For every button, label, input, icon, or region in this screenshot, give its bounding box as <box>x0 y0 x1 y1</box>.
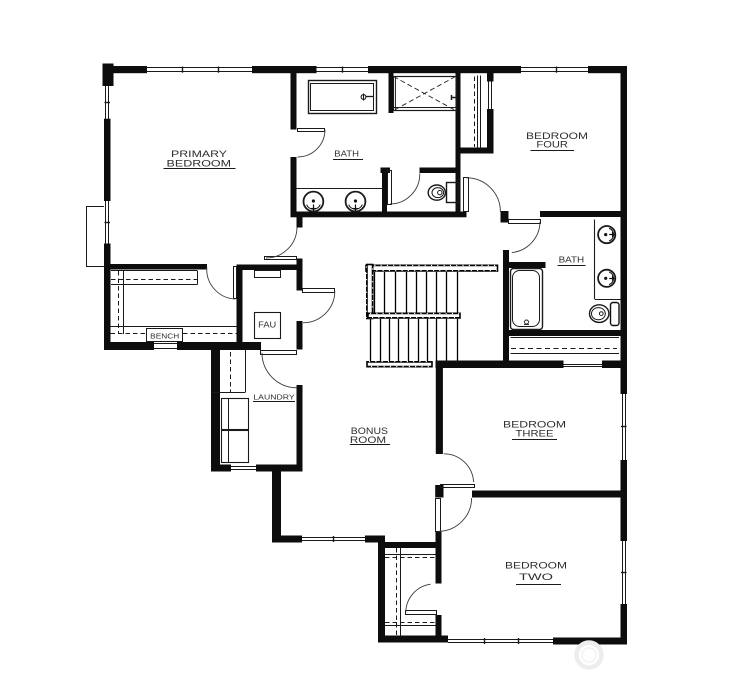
svg-text:BEDROOM: BEDROOM <box>505 561 567 571</box>
svg-text:TWO: TWO <box>519 572 553 582</box>
svg-text:THREE: THREE <box>516 429 554 439</box>
svg-text:LAUNDRY: LAUNDRY <box>253 392 294 401</box>
svg-text:BATH: BATH <box>559 256 585 265</box>
svg-text:BEDROOM: BEDROOM <box>167 158 232 168</box>
svg-text:ROOM: ROOM <box>350 435 386 445</box>
svg-text:BENCH: BENCH <box>150 331 179 340</box>
svg-text:FOUR: FOUR <box>536 140 568 150</box>
svg-text:BATH: BATH <box>334 150 359 159</box>
svg-text:FAU: FAU <box>258 321 276 330</box>
